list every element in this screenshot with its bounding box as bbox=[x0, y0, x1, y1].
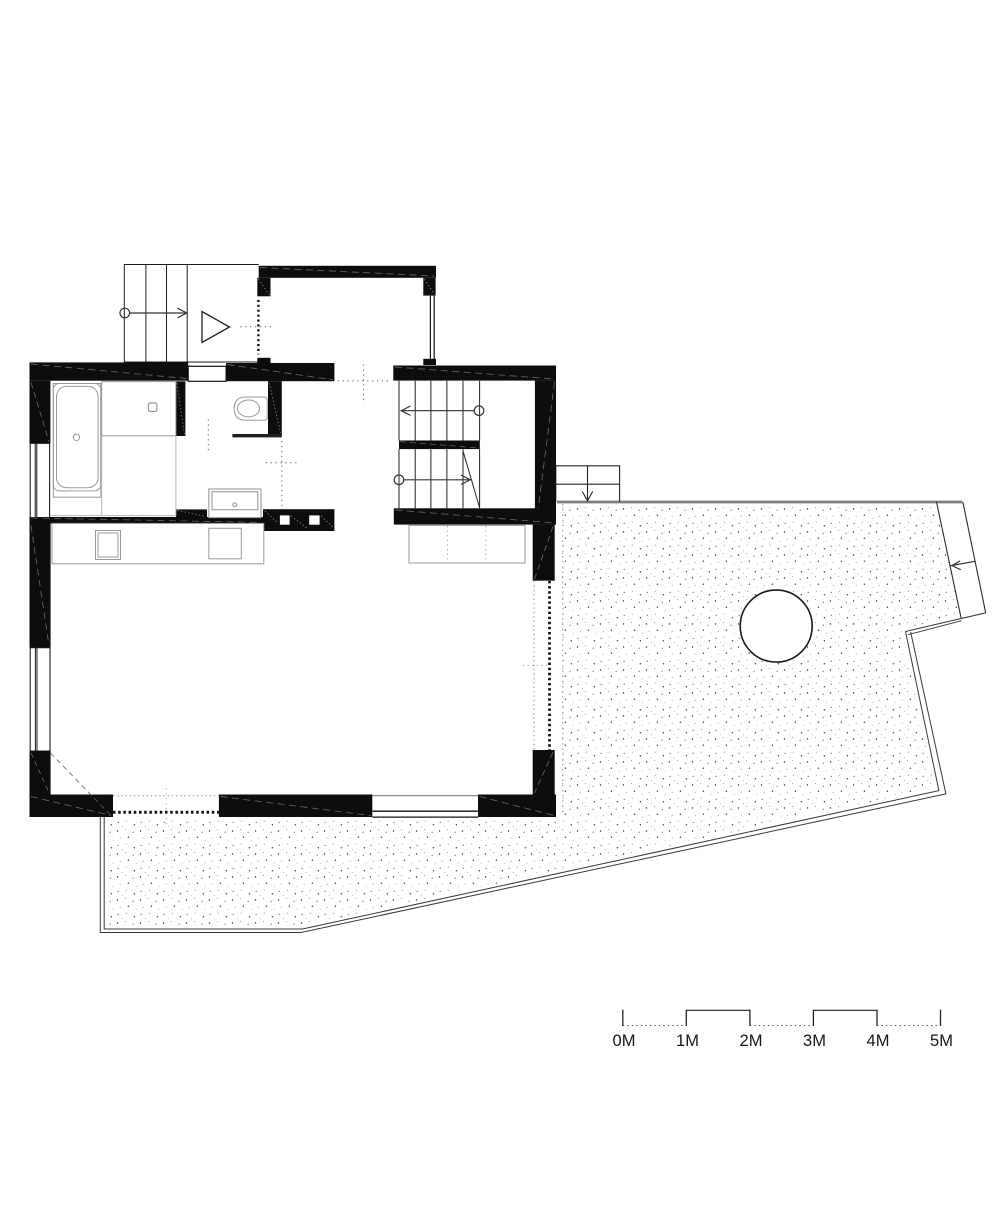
svg-text:2M: 2M bbox=[740, 1032, 763, 1050]
svg-text:0M: 0M bbox=[613, 1032, 636, 1050]
svg-text:1M: 1M bbox=[676, 1032, 699, 1050]
svg-text:5M: 5M bbox=[930, 1032, 953, 1050]
svg-text:3M: 3M bbox=[803, 1032, 826, 1050]
svg-text:4M: 4M bbox=[867, 1032, 890, 1050]
